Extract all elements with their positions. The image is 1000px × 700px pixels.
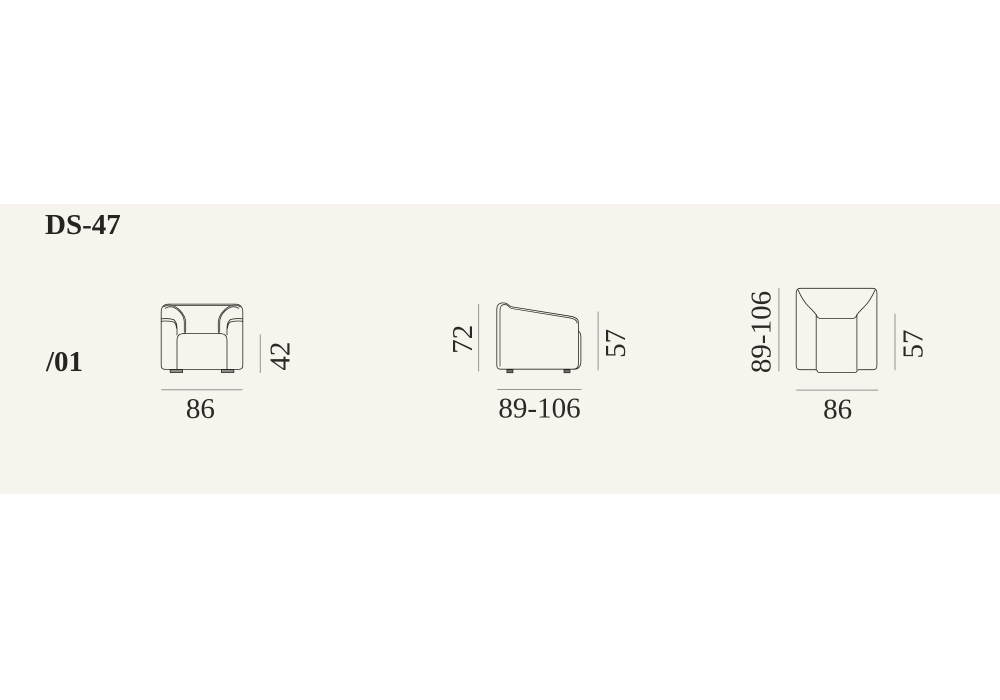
svg-text:89-106: 89-106: [746, 291, 778, 373]
svg-text:72: 72: [447, 325, 479, 354]
svg-text:42: 42: [265, 342, 297, 371]
svg-text:57: 57: [898, 330, 930, 359]
svg-text:57: 57: [600, 329, 632, 358]
svg-text:89-106: 89-106: [498, 393, 580, 425]
svg-text:86: 86: [823, 394, 852, 426]
svg-text:86: 86: [186, 393, 215, 425]
